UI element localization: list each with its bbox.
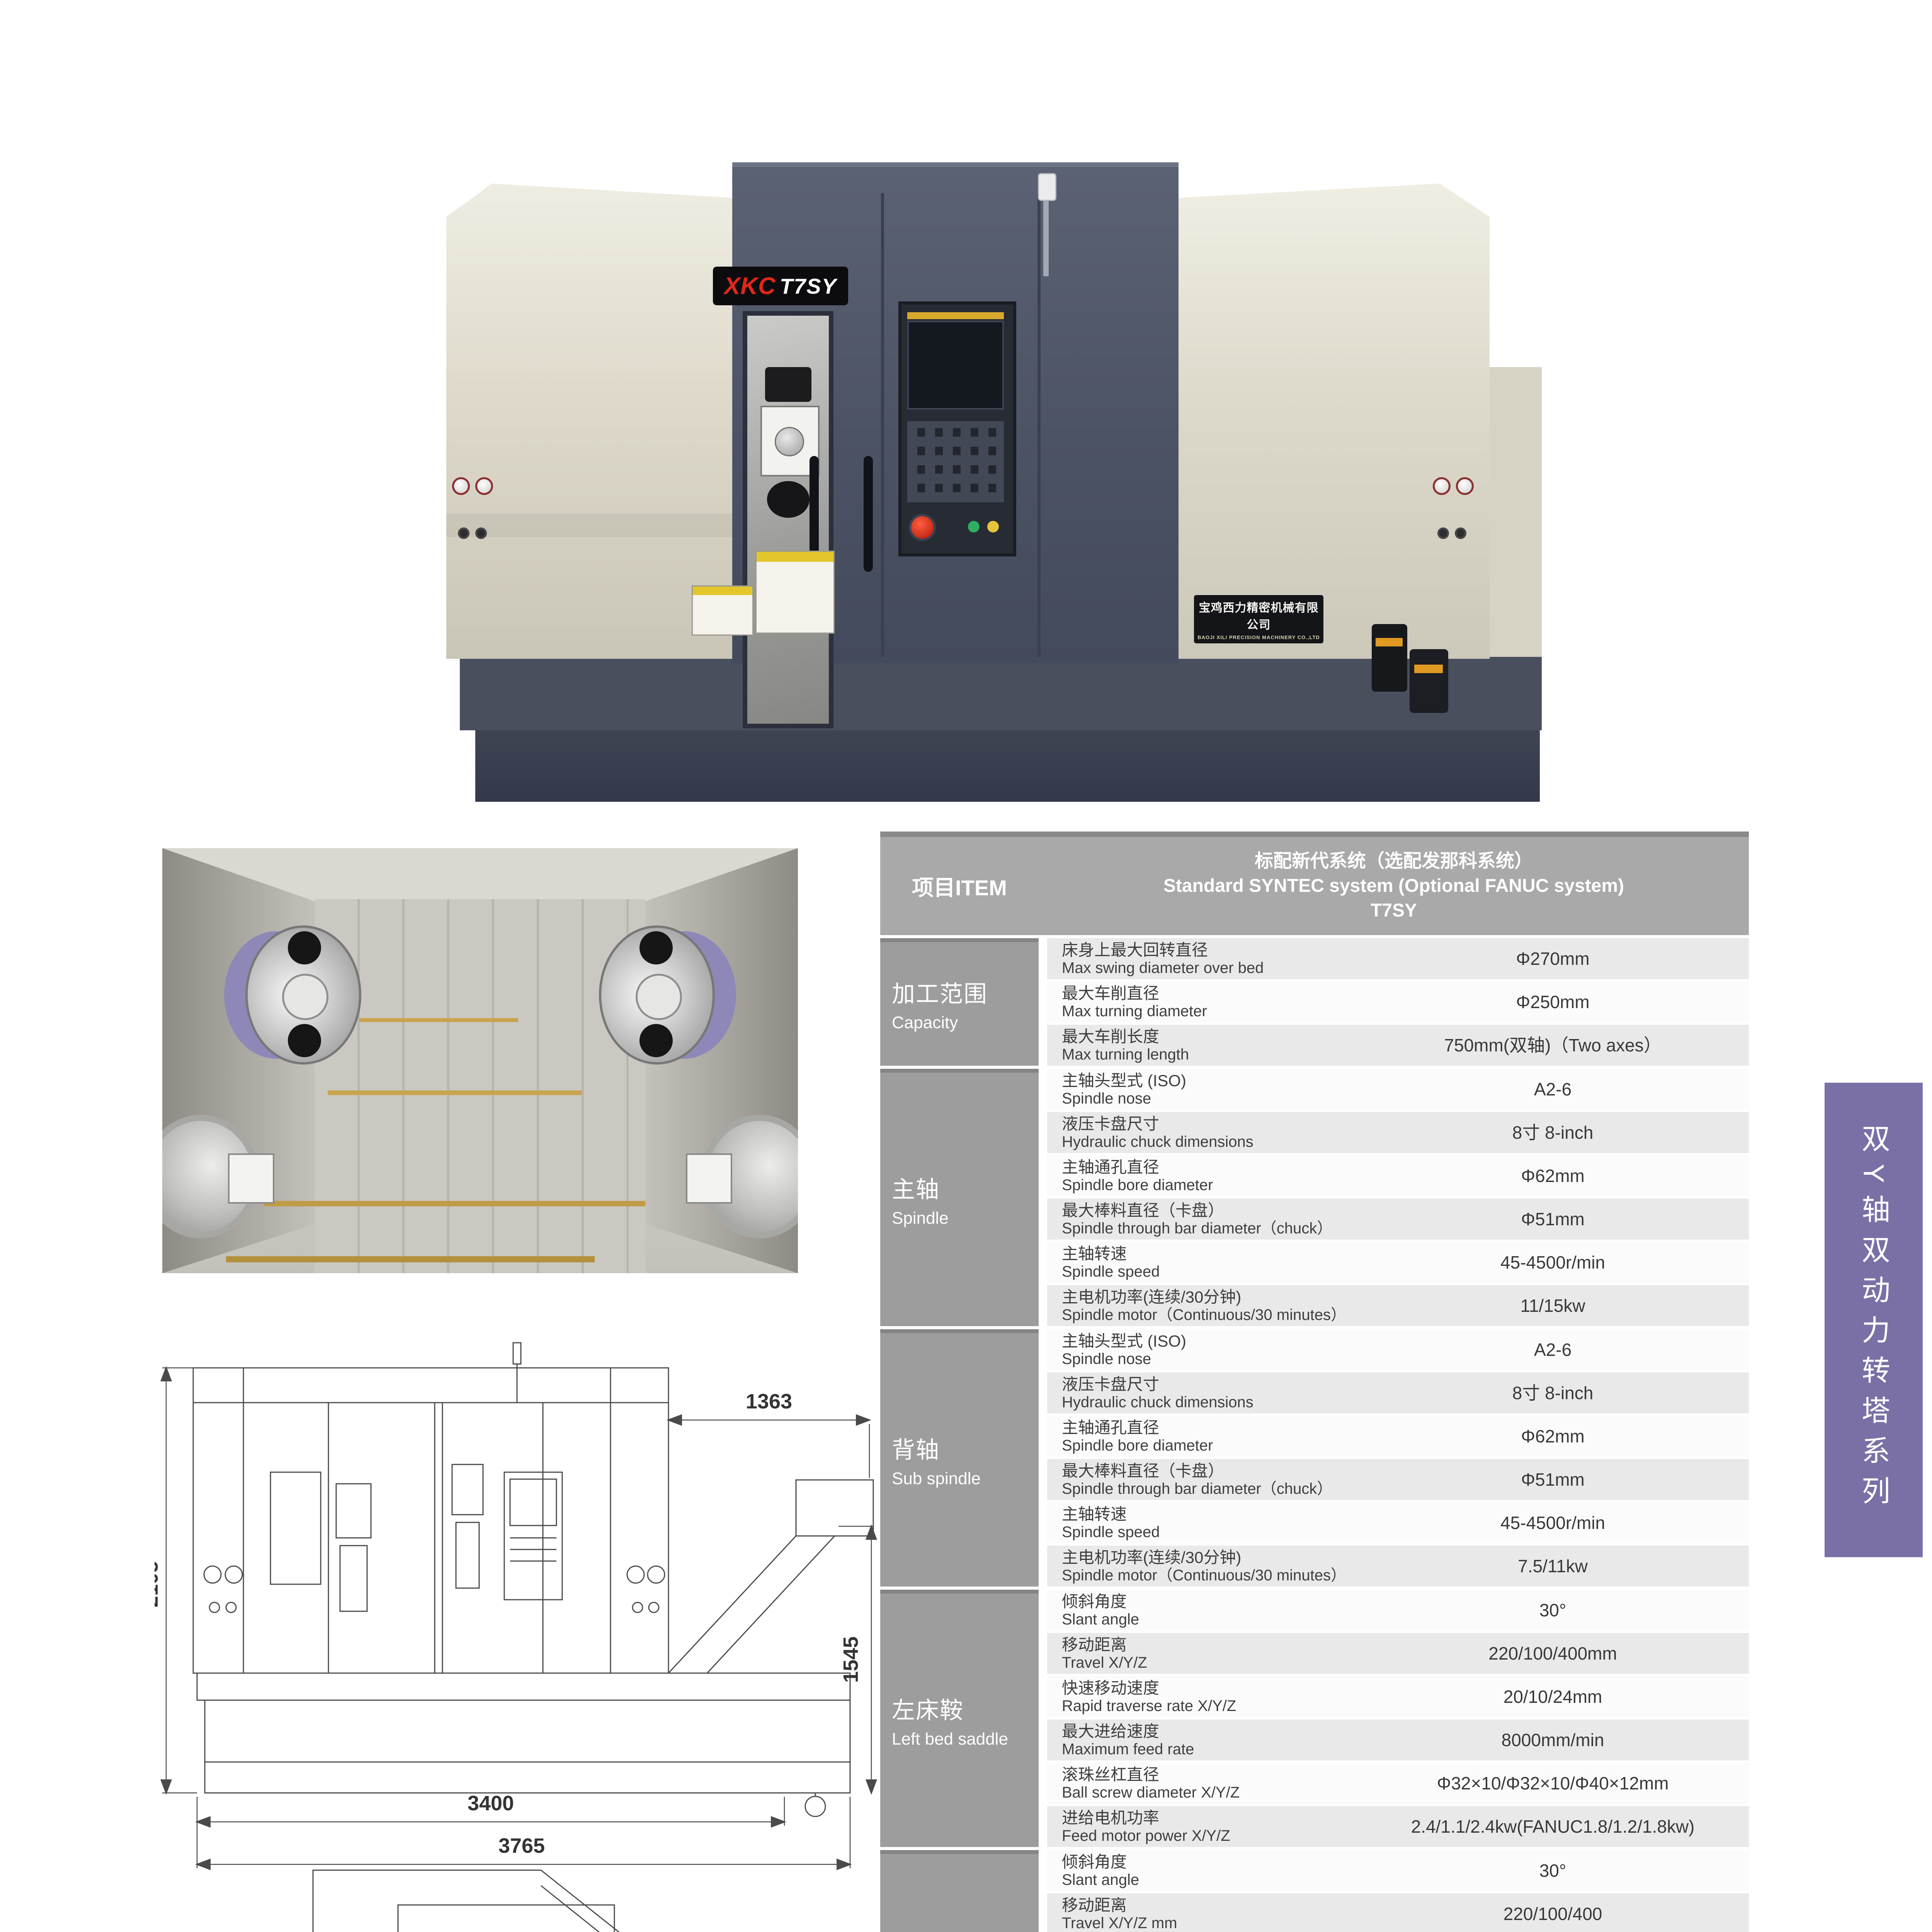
spec-header-system: 标配新代系统（选配发那科系统） Standard SYNTEC system (… (1039, 837, 1749, 935)
spec-row: 床身上最大回转直径Max swing diameter over bedΦ270… (1047, 938, 1749, 979)
param-value-text: 30° (1363, 1861, 1743, 1881)
model-text: T7SY (780, 274, 837, 299)
way-cover-strip (359, 1018, 518, 1022)
param-value-text: 45-4500r/min (1363, 1513, 1743, 1533)
spec-row: 倾斜角度Slant angle30° (1047, 1590, 1749, 1631)
warning-sticker (692, 585, 753, 636)
param-label: 液压卡盘尺寸Hydraulic chuck dimensions (1047, 1115, 1363, 1150)
spec-row: 最大车削直径Max turning diameterΦ250mm (1047, 981, 1749, 1022)
param-value-text: Φ51mm (1363, 1209, 1743, 1229)
spec-header-system-en: Standard SYNTEC system (Optional FANUC s… (1163, 877, 1624, 895)
machine-left-cabinet-stripe (446, 514, 732, 537)
param-value: 2.4/1.1/2.4kw(FANUC1.8/1.2/1.8kw) (1363, 1817, 1749, 1837)
param-label-cn: 倾斜角度 (1062, 1853, 1363, 1871)
section-label: 背轴Sub spindle (880, 1329, 1039, 1587)
param-label-cn: 最大进给速度 (1062, 1722, 1363, 1740)
param-label-cn: 倾斜角度 (1062, 1592, 1363, 1611)
param-label-en: Max turning length (1062, 1046, 1363, 1063)
param-label: 倾斜角度Slant angle (1047, 1592, 1363, 1628)
spec-row: 进给电机功率Feed motor power X/Y/Z2.4/1.1/2.4k… (1047, 1806, 1749, 1847)
param-value-text: 8寸 8-inch (1363, 1123, 1743, 1143)
green-button (968, 521, 980, 532)
spec-row: 主电机功率(连续/30分钟)Spindle motor（Continuous/3… (1047, 1546, 1749, 1587)
spec-row: 主轴头型式 (ISO)Spindle noseA2-6 (1047, 1329, 1749, 1370)
coolant-pump (1410, 649, 1448, 713)
chuck-hub (775, 427, 804, 456)
param-value-text: 11/15kw (1363, 1296, 1743, 1316)
param-label-en: Spindle nose (1062, 1350, 1363, 1367)
param-label: 主电机功率(连续/30分钟)Spindle motor（Continuous/3… (1047, 1288, 1363, 1323)
param-value-text: 220/100/400mm (1363, 1644, 1743, 1663)
param-label-en: Spindle bore diameter (1062, 1437, 1363, 1454)
param-label-en: Spindle through bar diameter（chuck） (1062, 1220, 1363, 1237)
spec-row: 主轴通孔直径Spindle bore diameterΦ62mm (1047, 1155, 1749, 1196)
machine-left-cabinet (446, 184, 732, 659)
page-root: XKC T7SY 宝鸡西力精密机械有限公司 BAOJI XILI PRECISI… (0, 0, 1932, 1932)
spec-row: 液压卡盘尺寸Hydraulic chuck dimensions8寸 8-inc… (1047, 1372, 1749, 1413)
param-value: 20/10/24mm (1363, 1687, 1749, 1707)
param-label-en: Hydraulic chuck dimensions (1062, 1394, 1363, 1411)
param-label: 滚珠丝杠直径Ball screw diameter X/Y/Z (1047, 1765, 1363, 1801)
param-value: 8寸 8-inch (1363, 1123, 1749, 1143)
param-value: A2-6 (1363, 1080, 1749, 1099)
spec-row: 主轴通孔直径Spindle bore diameterΦ62mm (1047, 1416, 1749, 1457)
series-banner: 双Y轴双动力转塔系列 (1825, 1083, 1923, 1557)
param-label-cn: 床身上最大回转直径 (1062, 941, 1363, 959)
param-label: 进给电机功率Feed motor power X/Y/Z (1047, 1809, 1363, 1844)
param-value-text: 45-4500r/min (1363, 1253, 1743, 1272)
dim-front-width-inner: 3400 (468, 1792, 514, 1815)
param-value: Φ62mm (1363, 1427, 1749, 1446)
param-label: 主轴头型式 (ISO)Spindle nose (1047, 1071, 1363, 1107)
warning-sticker (755, 551, 835, 634)
param-value-text: 2.4/1.1/2.4kw(FANUC1.8/1.2/1.8kw) (1363, 1817, 1743, 1837)
param-label-en: Hydraulic chuck dimensions (1062, 1133, 1363, 1150)
spec-section: 主轴Spindle主轴头型式 (ISO)Spindle noseA2-6液压卡盘… (880, 1069, 1749, 1326)
param-label-en: Slant angle (1062, 1871, 1363, 1888)
param-label-en: Spindle speed (1062, 1524, 1363, 1541)
spec-section: 右床鞍Right bed saddle倾斜角度Slant angle30°移动距… (880, 1850, 1749, 1932)
section-label-en: Sub spindle (892, 1469, 1039, 1489)
param-label-en: Travel X/Y/Z (1062, 1654, 1363, 1671)
section-label-en: Left bed saddle (892, 1729, 1039, 1749)
param-value-text: 750mm(双轴)（Two axes） (1363, 1036, 1743, 1055)
param-value: 220/100/400mm (1363, 1644, 1749, 1663)
param-label-cn: 液压卡盘尺寸 (1062, 1115, 1363, 1133)
cnc-keypad (907, 421, 1004, 502)
spec-row: 主轴转速Spindle speed45-4500r/min (1047, 1502, 1749, 1543)
spec-row: 倾斜角度Slant angle30° (1047, 1850, 1749, 1891)
param-label-en: Maximum feed rate (1062, 1741, 1363, 1758)
param-value-text: Φ270mm (1363, 949, 1743, 969)
param-value-text: 7.5/11kw (1363, 1556, 1743, 1576)
spec-header-system-cn: 标配新代系统（选配发那科系统） (1255, 852, 1533, 871)
spec-header-model: T7SY (1371, 901, 1417, 920)
section-label: 右床鞍Right bed saddle (880, 1850, 1039, 1932)
param-value-text: 220/100/400 (1363, 1904, 1743, 1924)
param-label-en: Spindle bore diameter (1062, 1177, 1363, 1194)
param-label: 主电机功率(连续/30分钟)Spindle motor（Continuous/3… (1047, 1548, 1363, 1583)
dim-front-height: 2105 (155, 1561, 162, 1607)
way-cover-strip (226, 1256, 595, 1262)
param-label: 主轴头型式 (ISO)Spindle nose (1047, 1332, 1363, 1367)
param-label: 最大棒料直径（卡盘）Spindle through bar diameter（c… (1047, 1201, 1363, 1236)
param-value: 45-4500r/min (1363, 1513, 1749, 1533)
param-label-cn: 移动距离 (1062, 1896, 1363, 1914)
param-label: 主轴转速Spindle speed (1047, 1505, 1363, 1540)
param-label: 最大棒料直径（卡盘）Spindle through bar diameter（c… (1047, 1462, 1363, 1497)
section-rows: 床身上最大回转直径Max swing diameter over bedΦ270… (1047, 938, 1749, 1066)
param-label-en: Ball screw diameter X/Y/Z (1062, 1784, 1363, 1801)
door-handle (864, 456, 873, 572)
param-label-cn: 主轴头型式 (ISO) (1062, 1332, 1363, 1350)
spec-row: 最大车削长度Max turning length750mm(双轴)（Two ax… (1047, 1025, 1749, 1066)
round-knob (1437, 527, 1449, 539)
param-label-cn: 移动距离 (1062, 1636, 1363, 1654)
cnc-screen-titlebar (907, 312, 1004, 319)
param-value: Φ51mm (1363, 1209, 1749, 1229)
section-label-en: Spindle (892, 1208, 1039, 1228)
section-rows: 倾斜角度Slant angle30°移动距离Travel X/Y/Z220/10… (1047, 1590, 1749, 1847)
machine-right-cabinet (1179, 184, 1490, 659)
spec-header: 项目ITEM 标配新代系统（选配发那科系统） Standard SYNTEC s… (880, 832, 1749, 935)
tool-holder (288, 931, 321, 964)
param-label: 床身上最大回转直径Max swing diameter over bed (1047, 941, 1363, 976)
coolant-pump (1372, 624, 1407, 692)
param-label-cn: 最大棒料直径（卡盘） (1062, 1201, 1363, 1219)
outline-drawing-front: 2105 1363 1545 3400 3765 (155, 1337, 877, 1905)
param-value: 8000mm/min (1363, 1730, 1749, 1750)
param-value: Φ270mm (1363, 949, 1749, 969)
param-label-cn: 主轴通孔直径 (1062, 1158, 1363, 1176)
machine-right-extension (1490, 367, 1542, 657)
round-knob (1455, 527, 1466, 539)
param-value: 8寸 8-inch (1363, 1383, 1749, 1403)
tool-holder (639, 931, 673, 964)
door-seam (1037, 193, 1041, 657)
param-label-en: Max turning diameter (1062, 1003, 1363, 1020)
param-value-text: Φ250mm (1363, 992, 1743, 1012)
way-cover-strip (328, 1090, 582, 1095)
outline-drawing-side: 1096 445 1977 (270, 1847, 873, 1932)
param-label-cn: 最大车削长度 (1062, 1027, 1363, 1046)
pressure-gauge (475, 477, 493, 495)
tool-holder (639, 1024, 673, 1057)
spec-row: 最大棒料直径（卡盘）Spindle through bar diameter（c… (1047, 1459, 1749, 1500)
model-plaque: XKC T7SY (713, 267, 848, 305)
section-label-cn: 左床鞍 (892, 1692, 1039, 1725)
spec-row: 最大进给速度Maximum feed rate8000mm/min (1047, 1719, 1749, 1760)
param-label-cn: 进给电机功率 (1062, 1809, 1363, 1827)
spec-row: 滚珠丝杠直径Ball screw diameter X/Y/ZΦ32×10/Φ3… (1047, 1763, 1749, 1804)
param-value: 750mm(双轴)（Two axes） (1363, 1036, 1749, 1055)
spec-table: 项目ITEM 标配新代系统（选配发那科系统） Standard SYNTEC s… (880, 832, 1749, 1932)
param-value: 45-4500r/min (1363, 1253, 1749, 1272)
param-value-text: A2-6 (1363, 1080, 1743, 1099)
param-label-en: Spindle through bar diameter（chuck） (1062, 1480, 1363, 1497)
series-banner-text: 双Y轴双动力转塔系列 (1853, 1124, 1895, 1516)
pressure-gauge (1433, 477, 1451, 495)
param-label: 主轴转速Spindle speed (1047, 1245, 1363, 1280)
company-name-en: BAOJI XILI PRECISION MACHINERY CO.,LTD (1197, 634, 1320, 640)
company-name-cn: 宝鸡西力精密机械有限公司 (1194, 598, 1323, 632)
door-seam (881, 193, 884, 657)
spec-row: 主电机功率(连续/30分钟)Spindle motor（Continuous/3… (1047, 1285, 1749, 1326)
param-value-text: 8寸 8-inch (1363, 1383, 1743, 1403)
param-label: 最大车削直径Max turning diameter (1047, 984, 1363, 1019)
param-label-cn: 主轴通孔直径 (1062, 1418, 1363, 1437)
left-tool-block (228, 1153, 274, 1204)
interior-photo (162, 848, 798, 1273)
param-label: 移动距离Travel X/Y/Z mm (1047, 1896, 1363, 1931)
dim-front-top-right: 1363 (746, 1390, 792, 1413)
signal-lamp (1038, 173, 1056, 201)
param-value: Φ250mm (1363, 992, 1749, 1012)
round-knob (458, 527, 469, 539)
param-label: 最大车削长度Max turning length (1047, 1027, 1363, 1063)
param-value-text: 20/10/24mm (1363, 1687, 1743, 1707)
param-value: 30° (1363, 1861, 1749, 1881)
param-value: Φ62mm (1363, 1166, 1749, 1186)
param-value-text: A2-6 (1363, 1340, 1743, 1360)
round-knob (475, 527, 487, 539)
spec-row: 移动距离Travel X/Y/Z220/100/400mm (1047, 1633, 1749, 1674)
section-label-cn: 主轴 (892, 1171, 1039, 1204)
param-label-cn: 滚珠丝杠直径 (1062, 1765, 1363, 1784)
right-tool-block (686, 1153, 732, 1204)
machine-photo: XKC T7SY 宝鸡西力精密机械有限公司 BAOJI XILI PRECISI… (425, 151, 1546, 804)
pressure-gauge (452, 477, 470, 495)
brand-text: XKC (724, 272, 776, 300)
param-value: 220/100/400 (1363, 1904, 1749, 1924)
param-label-cn: 快速移动速度 (1062, 1679, 1363, 1697)
param-label: 最大进给速度Maximum feed rate (1047, 1722, 1363, 1757)
param-value-text: 8000mm/min (1363, 1730, 1743, 1750)
param-label-cn: 主轴转速 (1062, 1505, 1363, 1523)
chuck-detail (765, 367, 811, 402)
section-label: 主轴Spindle (880, 1069, 1039, 1326)
section-rows: 主轴头型式 (ISO)Spindle noseA2-6液压卡盘尺寸Hydraul… (1047, 1069, 1749, 1326)
spec-row: 液压卡盘尺寸Hydraulic chuck dimensions8寸 8-inc… (1047, 1112, 1749, 1153)
spec-section: 背轴Sub spindle主轴头型式 (ISO)Spindle noseA2-6… (880, 1329, 1749, 1587)
spec-sections: 加工范围Capacity床身上最大回转直径Max swing diameter … (880, 938, 1749, 1932)
param-label-en: Spindle speed (1062, 1263, 1363, 1280)
yellow-button (987, 521, 999, 532)
section-label: 加工范围Capacity (880, 938, 1039, 1066)
param-label-en: Rapid traverse rate X/Y/Z (1062, 1697, 1363, 1714)
param-label-en: Spindle nose (1062, 1090, 1363, 1107)
param-value-text: 30° (1363, 1600, 1743, 1620)
param-label-en: Slant angle (1062, 1611, 1363, 1628)
param-label-en: Travel X/Y/Z mm (1062, 1915, 1363, 1932)
section-label-en: Capacity (892, 1013, 1039, 1033)
spec-row: 最大棒料直径（卡盘）Spindle through bar diameter（c… (1047, 1199, 1749, 1240)
section-label-cn: 加工范围 (892, 975, 1039, 1009)
param-value: A2-6 (1363, 1340, 1749, 1360)
param-label-cn: 液压卡盘尺寸 (1062, 1375, 1363, 1393)
chuck-detail (767, 481, 810, 518)
emergency-stop-button (909, 514, 936, 541)
spec-row: 移动距离Travel X/Y/Z mm220/100/400 (1047, 1893, 1749, 1932)
param-value-text: Φ32×10/Φ32×10/Φ40×12mm (1363, 1774, 1743, 1793)
param-label-cn: 最大棒料直径（卡盘） (1062, 1462, 1363, 1480)
way-cover-strip (264, 1201, 645, 1206)
param-label-cn: 主轴转速 (1062, 1245, 1363, 1263)
param-value: Φ51mm (1363, 1470, 1749, 1490)
spec-row: 快速移动速度Rapid traverse rate X/Y/Z20/10/24m… (1047, 1676, 1749, 1717)
spec-row: 主轴转速Spindle speed45-4500r/min (1047, 1242, 1749, 1283)
param-label-en: Feed motor power X/Y/Z (1062, 1827, 1363, 1844)
spec-section: 加工范围Capacity床身上最大回转直径Max swing diameter … (880, 938, 1749, 1066)
section-rows: 主轴头型式 (ISO)Spindle noseA2-6液压卡盘尺寸Hydraul… (1047, 1329, 1749, 1587)
param-label-en: Spindle motor（Continuous/30 minutes） (1062, 1306, 1363, 1323)
param-label-cn: 最大车削直径 (1062, 984, 1363, 1002)
param-label-en: Max swing diameter over bed (1062, 959, 1363, 976)
param-label-cn: 主电机功率(连续/30分钟) (1062, 1288, 1363, 1306)
param-label: 快速移动速度Rapid traverse rate X/Y/Z (1047, 1679, 1363, 1714)
param-label: 移动距离Travel X/Y/Z (1047, 1636, 1363, 1671)
spec-row: 主轴头型式 (ISO)Spindle noseA2-6 (1047, 1069, 1749, 1110)
spec-header-item: 项目ITEM (880, 837, 1039, 935)
section-label: 左床鞍Left bed saddle (880, 1590, 1039, 1847)
dim-front-right-height: 1545 (839, 1636, 862, 1683)
param-value: 7.5/11kw (1363, 1556, 1749, 1576)
company-plate: 宝鸡西力精密机械有限公司 BAOJI XILI PRECISION MACHIN… (1194, 595, 1323, 643)
param-label: 倾斜角度Slant angle (1047, 1853, 1363, 1888)
left-turret-hub (282, 974, 328, 1020)
interior-floor (315, 899, 645, 1273)
param-value: 30° (1363, 1600, 1749, 1620)
param-label-en: Spindle motor（Continuous/30 minutes） (1062, 1567, 1363, 1584)
param-value: Φ32×10/Φ32×10/Φ40×12mm (1363, 1774, 1749, 1793)
right-turret-hub (636, 974, 682, 1020)
param-value: 11/15kw (1363, 1296, 1749, 1316)
param-label: 主轴通孔直径Spindle bore diameter (1047, 1418, 1363, 1454)
cnc-screen (907, 321, 1004, 410)
param-label-cn: 主轴头型式 (ISO) (1062, 1071, 1363, 1090)
machine-pallet (475, 730, 1540, 802)
param-value-text: Φ51mm (1363, 1470, 1743, 1490)
pressure-gauge (1456, 477, 1474, 495)
section-label-cn: 背轴 (892, 1431, 1039, 1465)
param-label: 主轴通孔直径Spindle bore diameter (1047, 1158, 1363, 1193)
param-label: 液压卡盘尺寸Hydraulic chuck dimensions (1047, 1375, 1363, 1410)
param-value-text: Φ62mm (1363, 1427, 1743, 1446)
section-rows: 倾斜角度Slant angle30°移动距离Travel X/Y/Z mm220… (1047, 1850, 1749, 1932)
spec-section: 左床鞍Left bed saddle倾斜角度Slant angle30°移动距离… (880, 1590, 1749, 1847)
tool-holder (288, 1024, 321, 1057)
param-value-text: Φ62mm (1363, 1166, 1743, 1186)
param-label-cn: 主电机功率(连续/30分钟) (1062, 1548, 1363, 1566)
